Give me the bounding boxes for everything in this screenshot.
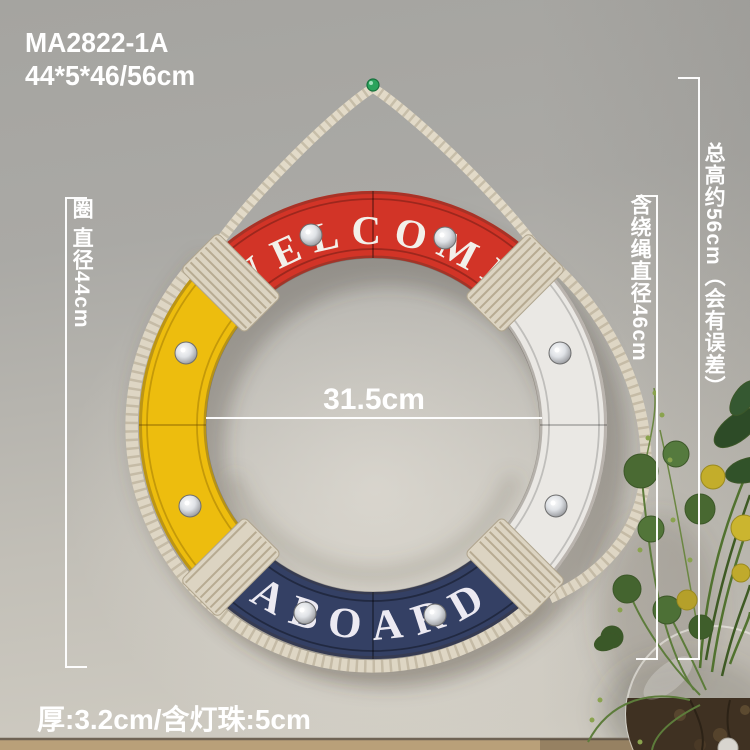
dim-total-height-label: 总高约56cm（会有误差） — [702, 142, 725, 398]
push-pin — [367, 79, 379, 91]
knob — [294, 602, 316, 624]
dim-ring-diameter-label: 圈 直径44cm — [70, 198, 93, 668]
knob — [434, 227, 456, 249]
knob — [300, 224, 322, 246]
knob — [545, 495, 567, 517]
knob — [175, 342, 197, 364]
knob — [424, 604, 446, 626]
dim-left-line — [65, 198, 67, 668]
product-model: MA2822-1A — [25, 26, 195, 59]
dim-rope-diameter-label: 含绕绳直径46cm — [628, 194, 651, 362]
dim-outer-tick-top — [678, 77, 700, 79]
knob — [179, 495, 201, 517]
dim-center-line — [206, 417, 542, 419]
dim-outer-line — [698, 78, 700, 660]
thickness-spec-label: 厚:3.2cm/含灯珠:5cm — [37, 698, 311, 738]
product-size: 44*5*46/56cm — [25, 59, 195, 92]
lifebuoy-illustration: WELCOME ABOARD — [0, 0, 750, 750]
dim-inner-line — [656, 196, 658, 660]
dim-outer-tick-bottom — [678, 658, 700, 660]
knob — [549, 342, 571, 364]
dim-inner-diameter-label: 31.5cm — [206, 383, 542, 417]
product-photo-scene: WELCOME ABOARD — [0, 0, 750, 750]
dim-inner-tick-bottom — [636, 658, 658, 660]
product-code-block: MA2822-1A 44*5*46/56cm — [25, 26, 195, 92]
